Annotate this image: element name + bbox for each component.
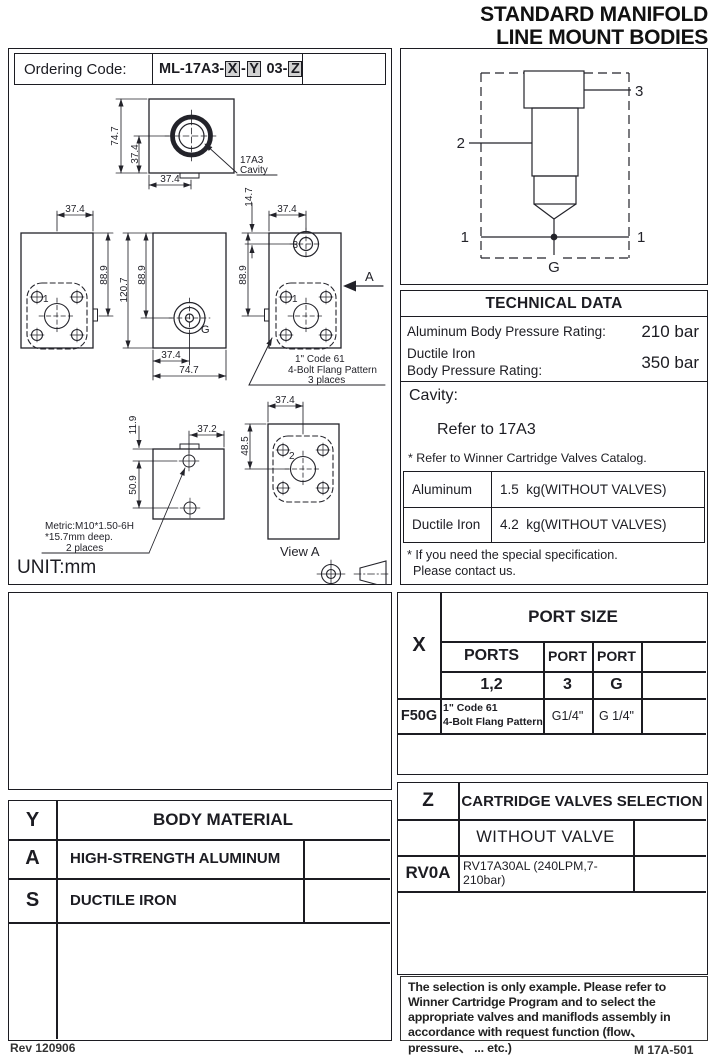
dim-ml-side: 88.9 xyxy=(99,265,110,285)
cavity-note: * Refer to Winner Cartridge Valves Catal… xyxy=(408,451,647,465)
schematic-port2-label: 2 xyxy=(457,135,465,152)
aluminum-rating-label: Aluminum Body Pressure Rating: xyxy=(407,324,606,341)
technical-drawings: 74.7 37.4 37.4 17A3 Cavity 37.4 88.9 1 1… xyxy=(9,85,389,585)
table-line xyxy=(398,891,706,893)
ordering-code-row: Ordering Code: ML-17A3-X-Y 03-Z xyxy=(14,53,386,85)
body-row-code: S xyxy=(9,878,56,922)
page-title: STANDARD MANIFOLD LINE MOUNT BODIES xyxy=(480,3,708,49)
schematic-port-labels: 2 3 1 1 G xyxy=(457,83,646,276)
cavity-value: Refer to 17A3 xyxy=(437,421,536,439)
port3-label: 3 xyxy=(292,240,298,251)
cavity-label: Cavity: xyxy=(409,387,458,405)
dim-mr-top: 37.4 xyxy=(277,204,297,215)
cartridge-valve-table: Z CARTRIDGE VALVES SELECTION WITHOUT VAL… xyxy=(397,782,708,975)
ports-subheader: 1,2 xyxy=(440,671,543,698)
ductile-rating-row: Ductile Iron Body Pressure Rating: 350 b… xyxy=(407,345,701,381)
page-title-line1: STANDARD MANIFOLD xyxy=(480,3,708,26)
technical-data-panel: TECHNICAL DATA Aluminum Body Pressure Ra… xyxy=(400,290,708,585)
dim-mc-half: 37.4 xyxy=(161,350,181,361)
drawing-outlines xyxy=(21,99,389,585)
code-x-box: X xyxy=(225,61,240,77)
z-table-title: CARTRIDGE VALVES SELECTION xyxy=(458,783,706,819)
dim-mr-side: 88.9 xyxy=(238,265,249,285)
portg-subheader: G xyxy=(592,671,641,698)
weight-material: Aluminum xyxy=(404,472,492,507)
schematic-panel: 2 3 1 1 G xyxy=(400,48,708,285)
weight-value: 1.5 kg(WITHOUT VALVES) xyxy=(492,482,667,497)
dim-mc-height: 120.7 xyxy=(119,277,130,302)
projection-symbol xyxy=(317,560,389,585)
code-mid: 03- xyxy=(262,61,287,77)
page-title-line2: LINE MOUNT BODIES xyxy=(480,26,708,49)
port1-label-ml: 1 xyxy=(43,294,49,305)
dim-mc-port: 88.9 xyxy=(137,265,148,285)
dim-mc-width: 74.7 xyxy=(179,365,199,376)
port-row-key: F50G xyxy=(398,698,440,733)
port-row-ports-l1: 1" Code 61 xyxy=(443,702,543,715)
aluminum-rating-row: Aluminum Body Pressure Rating: 210 bar xyxy=(407,319,701,345)
z-table-key: Z xyxy=(398,783,458,819)
weight-row-ductile: Ductile Iron 4.2 kg(WITHOUT VALVES) xyxy=(404,508,704,543)
weight-value: 4.2 kg(WITHOUT VALVES) xyxy=(492,517,667,532)
view-a-label: View A xyxy=(280,544,320,559)
dim-bl-width: 37.2 xyxy=(197,424,217,435)
dim-mr-offset: 14.7 xyxy=(244,187,255,207)
port-row-portg: G 1/4" xyxy=(592,698,641,733)
port3-subheader: 3 xyxy=(543,671,592,698)
empty-panel xyxy=(8,592,392,790)
portg-label: G xyxy=(201,324,210,336)
port-table-key: X xyxy=(398,593,440,698)
cartridge-shape xyxy=(469,71,631,255)
valve-schematic: 2 3 1 1 G xyxy=(401,49,706,282)
dim-bl-pitch: 50.9 xyxy=(128,475,139,495)
body-row-code: A xyxy=(9,839,56,878)
dim-cavity-half-v: 37.4 xyxy=(130,144,141,164)
body-table-title: BODY MATERIAL xyxy=(56,801,390,839)
z-option-rv0a-value: RV17A30AL (240LPM,7-210bar) xyxy=(458,855,633,891)
dim-va-side: 48.5 xyxy=(240,436,251,456)
section-arrow-label: A xyxy=(365,269,374,284)
body-row-material: DUCTILE IRON xyxy=(56,878,303,922)
port-size-title: PORT SIZE xyxy=(440,593,706,641)
aluminum-rating-value: 210 bar xyxy=(641,322,701,342)
schematic-portg-label: G xyxy=(548,259,560,276)
ports-header: PORTS xyxy=(440,641,543,671)
port2-label: 2 xyxy=(289,451,295,462)
body-row-material: HIGH-STRENGTH ALUMINUM xyxy=(56,839,303,878)
port-row-ports: 1" Code 61 4-Bolt Flang Pattern xyxy=(440,698,543,733)
table-line xyxy=(641,641,643,733)
ductile-rating-value: 350 bar xyxy=(641,353,701,373)
schematic-port1-left-label: 1 xyxy=(461,229,469,246)
ordering-code-label: Ordering Code: xyxy=(15,54,153,84)
weight-row-aluminum: Aluminum 1.5 kg(WITHOUT VALVES) xyxy=(404,472,704,508)
dim-cavity-half-h: 37.4 xyxy=(160,174,180,185)
cavity-callout-line2: Cavity xyxy=(240,165,268,176)
schematic-port1-right-label: 1 xyxy=(637,229,645,246)
ductile-rating-label: Ductile Iron Body Pressure Rating: xyxy=(407,346,542,380)
special-spec-note-l2: Please contact us. xyxy=(407,564,618,580)
body-table-key: Y xyxy=(9,801,56,839)
dim-ml-top: 37.4 xyxy=(65,204,85,215)
z-option-rv0a-key: RV0A xyxy=(398,855,458,891)
special-spec-note-l1: * If you need the special specification. xyxy=(407,548,618,564)
port1-label-mr: 1 xyxy=(292,294,298,305)
dim-bl-top: 11.9 xyxy=(128,415,139,434)
table-line xyxy=(303,839,305,922)
port-row-ports-l2: 4-Bolt Flang Pattern xyxy=(443,716,543,729)
footer-left: Rev 120906 xyxy=(10,1041,75,1055)
code-prefix: ML-17A3- xyxy=(159,61,224,77)
table-line xyxy=(9,922,390,924)
port-size-table: X PORT SIZE PORTS PORT PORT 1,2 3 G F50G… xyxy=(397,592,708,775)
datasheet-page: { "header": { "title_line1": "STANDARD M… xyxy=(0,0,715,1050)
schematic-port3-label: 3 xyxy=(635,83,643,100)
weight-table: Aluminum 1.5 kg(WITHOUT VALVES) Ductile … xyxy=(403,471,705,543)
ordering-code-empty-cell xyxy=(303,54,385,84)
ordering-code-value: ML-17A3-X-Y 03-Z xyxy=(153,54,303,84)
special-spec-note: * If you need the special specification.… xyxy=(407,548,618,579)
flange-callout-line1: 1" Code 61 xyxy=(295,354,345,365)
technical-data-title: TECHNICAL DATA xyxy=(401,291,707,317)
drawing-panel: Ordering Code: ML-17A3-X-Y 03-Z xyxy=(8,48,392,585)
metric-callout-line1: Metric:M10*1.50-6H xyxy=(45,521,134,532)
port3-header: PORT xyxy=(543,641,592,671)
footer-right: M 17A-501 xyxy=(634,1043,693,1057)
unit-label: UNIT:mm xyxy=(17,557,96,579)
metric-callout-line2: *15.7mm deep. xyxy=(45,532,113,543)
port-row-port3: G1/4" xyxy=(543,698,592,733)
table-line xyxy=(398,733,706,735)
dim-cavity-height: 74.7 xyxy=(110,126,121,146)
ductile-rating-label-l2: Body Pressure Rating: xyxy=(407,363,542,380)
code-dash: - xyxy=(241,61,246,77)
dim-va-top: 37.4 xyxy=(275,395,295,406)
weight-material: Ductile Iron xyxy=(404,508,492,543)
flange-callout-line3: 3 places xyxy=(308,375,345,386)
valve-boundary xyxy=(481,73,629,258)
code-y-box: Y xyxy=(247,61,262,77)
portg-header: PORT xyxy=(592,641,641,671)
ductile-rating-label-l1: Ductile Iron xyxy=(407,346,542,363)
selection-note: The selection is only example. Please re… xyxy=(400,976,708,1041)
z-option-without-valve: WITHOUT VALVE xyxy=(458,819,633,855)
body-material-table: Y BODY MATERIAL A HIGH-STRENGTH ALUMINUM… xyxy=(8,800,392,1041)
pressure-ratings: Aluminum Body Pressure Rating: 210 bar D… xyxy=(401,316,707,382)
metric-callout-line3: 2 places xyxy=(66,543,103,554)
code-z-box: Z xyxy=(288,61,302,77)
